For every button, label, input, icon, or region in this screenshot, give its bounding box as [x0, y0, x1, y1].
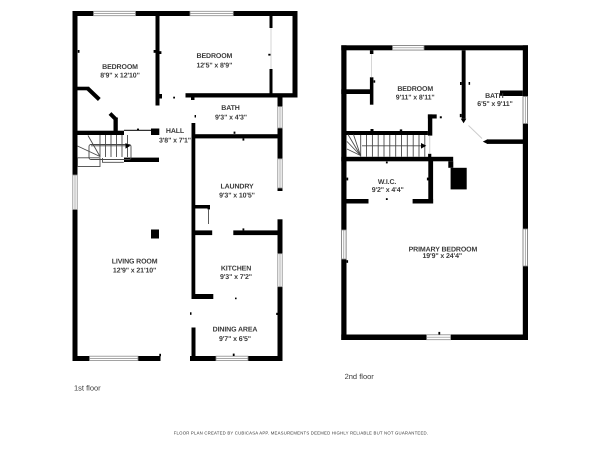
- svg-text:BEDROOM: BEDROOM: [397, 86, 433, 93]
- svg-text:BEDROOM: BEDROOM: [197, 53, 233, 60]
- svg-text:1st floor: 1st floor: [74, 384, 101, 393]
- svg-text:9'2" x 4'4": 9'2" x 4'4": [372, 187, 404, 194]
- svg-text:LAUNDRY: LAUNDRY: [220, 183, 254, 190]
- svg-text:BATH: BATH: [485, 93, 504, 100]
- svg-text:BEDROOM: BEDROOM: [102, 64, 138, 71]
- svg-text:19'9" x 24'4": 19'9" x 24'4": [423, 253, 463, 260]
- svg-text:9'7" x 6'5": 9'7" x 6'5": [219, 336, 251, 343]
- svg-text:HALL: HALL: [166, 128, 185, 135]
- svg-text:2nd floor: 2nd floor: [345, 372, 375, 381]
- svg-text:9'3" x 4'3": 9'3" x 4'3": [215, 114, 247, 121]
- svg-text:9'3" x 10'5": 9'3" x 10'5": [219, 193, 255, 200]
- svg-text:9'3" x 7'2": 9'3" x 7'2": [220, 274, 252, 281]
- svg-text:8'9" x 12'10": 8'9" x 12'10": [100, 73, 140, 80]
- svg-text:BATH: BATH: [221, 105, 240, 112]
- svg-text:3'8" x 7'1": 3'8" x 7'1": [159, 137, 191, 144]
- svg-text:6'5" x 9'11": 6'5" x 9'11": [477, 101, 512, 108]
- svg-text:W.I.C.: W.I.C.: [378, 179, 397, 186]
- svg-text:DINING AREA: DINING AREA: [213, 327, 258, 334]
- svg-text:LIVING ROOM: LIVING ROOM: [112, 259, 158, 266]
- svg-text:12'9" x 21'10": 12'9" x 21'10": [113, 267, 156, 274]
- svg-text:12'5" x 8'9": 12'5" x 8'9": [197, 63, 233, 70]
- svg-text:FLOOR PLAN CREATED BY CUBICASA: FLOOR PLAN CREATED BY CUBICASA APP. MEAS…: [174, 431, 429, 436]
- svg-text:9'11" x 8'11": 9'11" x 8'11": [396, 95, 435, 102]
- svg-text:KITCHEN: KITCHEN: [221, 266, 251, 273]
